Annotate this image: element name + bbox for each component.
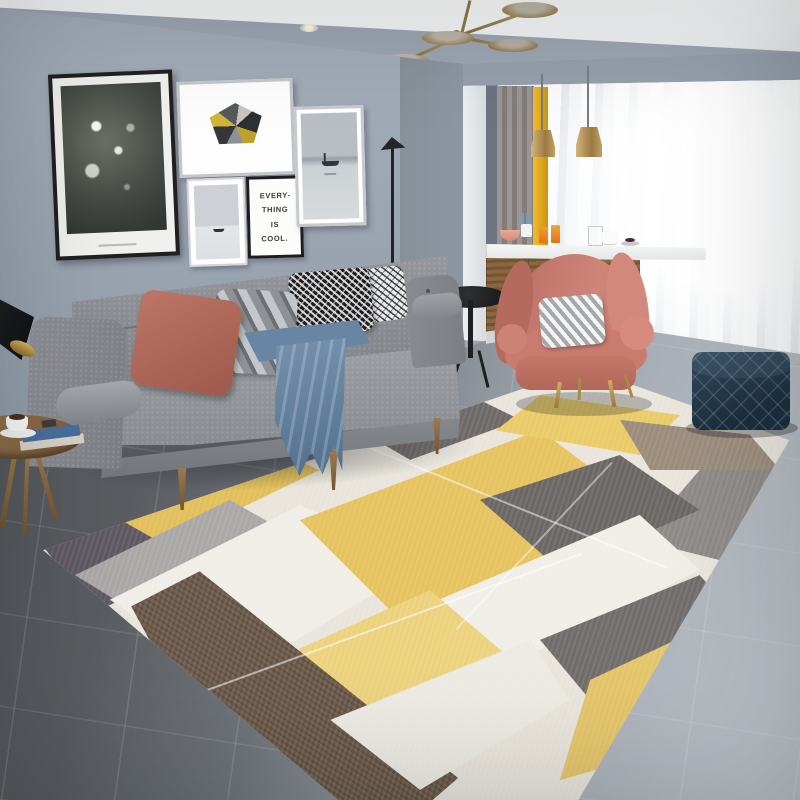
utensil-sticks [522, 213, 531, 224]
quote-line: EVERY- [260, 189, 291, 203]
frame-botanical [48, 69, 180, 260]
seascape-small-boat [213, 228, 224, 231]
pouf-top-highlight [692, 352, 790, 378]
geometric-gem-art [204, 102, 268, 150]
pendant-cord [541, 74, 543, 132]
frame-boat-seascape [293, 105, 366, 227]
berries [625, 238, 635, 242]
pillow-rose [129, 288, 243, 397]
frame-geometric [176, 78, 295, 178]
armchair-seat-front [516, 356, 636, 390]
quote-line: IS [271, 217, 279, 230]
chandelier-disc [488, 39, 538, 52]
recessed-spotlight-icon [300, 24, 318, 32]
frame-seascape-small [186, 177, 247, 267]
pendant-light [531, 130, 555, 157]
armchair-chevron-pillow [538, 293, 606, 348]
quote-text: EVERY- THING IS COOL. [250, 178, 301, 255]
living-room-photo: EVERY- THING IS COOL. [0, 0, 800, 800]
chandelier-disc [422, 31, 474, 45]
armchair-arm-curl [497, 324, 527, 354]
chandelier-disc [502, 2, 558, 18]
quote-line: COOL. [261, 231, 288, 245]
boat-reflection [324, 173, 336, 175]
accent-table-stem [468, 300, 473, 358]
juice-glass [551, 225, 560, 243]
frame-botanical-photo [61, 82, 167, 234]
pendant-light [576, 127, 602, 157]
coffee-surface [9, 414, 25, 420]
sofa-arm-right [403, 273, 466, 368]
boat-figure [323, 154, 325, 162]
utensil-cup [521, 224, 532, 237]
clear-glass [588, 226, 603, 246]
white-mug [602, 231, 617, 244]
armchair-arm-curl [620, 316, 654, 350]
seascape-small-photo [194, 184, 241, 259]
quote-line: THING [262, 203, 288, 217]
sofa-button [426, 289, 430, 293]
juice-glass [539, 227, 548, 243]
pendant-cord [587, 66, 589, 128]
